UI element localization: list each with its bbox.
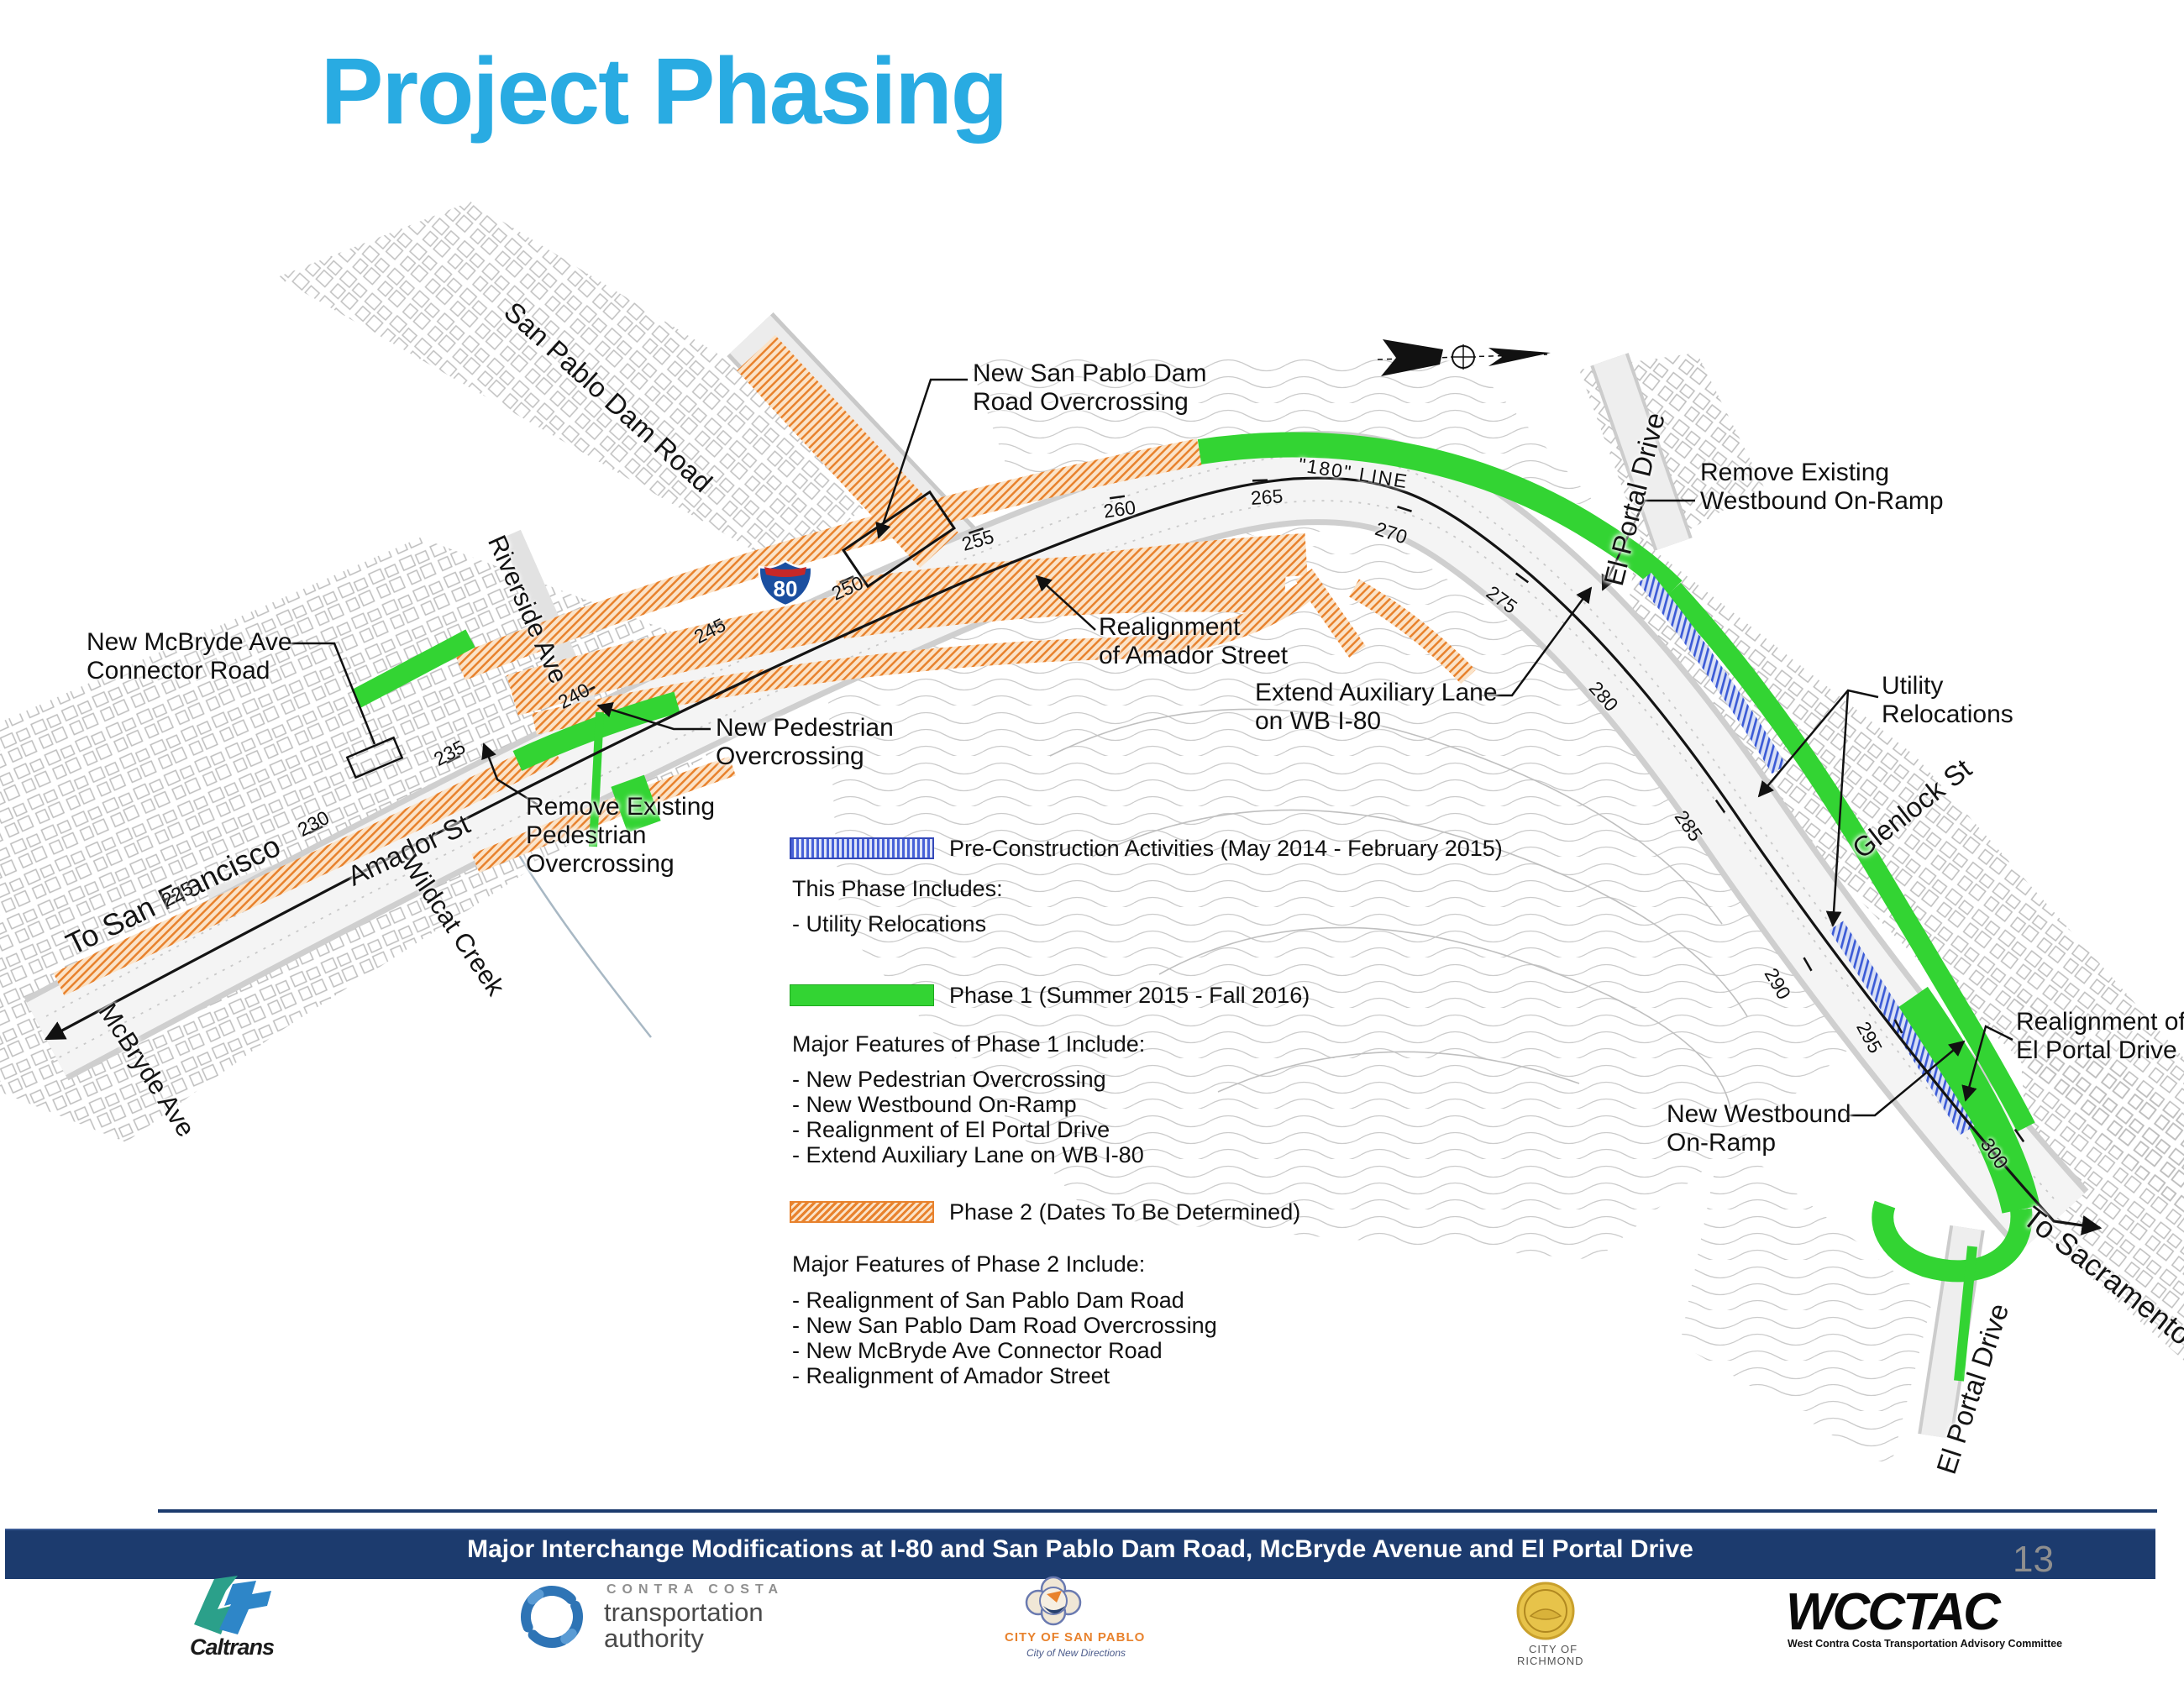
- legend-item: - Realignment of El Portal Drive: [792, 1117, 1110, 1143]
- callout-utility-relocations: Utility Relocations: [1882, 672, 2013, 729]
- callout-remove-existing-westbound-on-ramp: Remove Existing Westbound On-Ramp: [1700, 459, 1944, 516]
- legend-item: - New San Pablo Dam Road Overcrossing: [792, 1313, 1217, 1339]
- richmond-logo-icon: [1515, 1581, 1576, 1641]
- legend-item: - New Westbound On-Ramp: [792, 1092, 1077, 1118]
- legend: Pre-Construction Activities (May 2014 - …: [790, 827, 1562, 1407]
- callout-line: New San Pablo Dam: [973, 359, 1206, 388]
- legend-item: - Utility Relocations: [792, 911, 986, 937]
- legend-item: - Realignment of San Pablo Dam Road: [792, 1288, 1184, 1314]
- callout-line: Westbound On-Ramp: [1700, 487, 1944, 516]
- page-number: 13: [2013, 1539, 2054, 1581]
- legend-subtitle-preconstruction: This Phase Includes:: [792, 876, 1003, 902]
- callout-line: Pedestrian: [526, 821, 715, 850]
- callout-line: El Portal Drive: [2016, 1036, 2184, 1065]
- callout-line: Overcrossing: [716, 742, 894, 771]
- station-260: 260: [1102, 496, 1137, 523]
- caltrans-logo-icon: [179, 1576, 280, 1636]
- san-pablo-logo-caption: CITY OF SAN PABLO: [1005, 1630, 1145, 1645]
- legend-title-phase2: Phase 2 (Dates To Be Determined): [949, 1199, 1300, 1225]
- ccta-logo-icon: [515, 1580, 589, 1654]
- wcctac-logo-caption: West Contra Costa Transportation Advisor…: [1788, 1638, 2062, 1650]
- callout-line: New Westbound: [1667, 1100, 1851, 1129]
- callout-line: Remove Existing: [526, 793, 715, 821]
- callout-line: New McBryde Ave: [87, 628, 292, 657]
- callout-line: Remove Existing: [1700, 459, 1944, 487]
- callout-new-westbound-on-ramp: New Westbound On-Ramp: [1667, 1100, 1851, 1157]
- callout-line: Realignment: [1099, 613, 1288, 642]
- legend-subtitle-phase1: Major Features of Phase 1 Include:: [792, 1031, 1145, 1057]
- callout-line: Extend Auxiliary Lane: [1255, 679, 1498, 707]
- callout-extend-auxiliary-lane: Extend Auxiliary Lane on WB I-80: [1255, 679, 1498, 736]
- legend-title-preconstruction: Pre-Construction Activities (May 2014 - …: [949, 836, 1503, 862]
- page-title: Project Phasing: [0, 37, 1327, 145]
- callout-realignment-of-amador-street: Realignment of Amador Street: [1099, 613, 1288, 670]
- callout-line: Relocations: [1882, 700, 2013, 729]
- callout-remove-existing-pedestrian-overcrossing: Remove Existing Pedestrian Overcrossing: [526, 793, 715, 879]
- ccta-logo-top-text: CONTRA COSTA: [606, 1582, 784, 1597]
- callout-line: on WB I-80: [1255, 707, 1498, 736]
- legend-title-phase1: Phase 1 (Summer 2015 - Fall 2016): [949, 983, 1310, 1009]
- legend-swatch-preconstruction: [790, 837, 934, 859]
- callout-line: On-Ramp: [1667, 1129, 1851, 1157]
- legend-subtitle-phase2: Major Features of Phase 2 Include:: [792, 1251, 1145, 1277]
- callout-new-mcbryde-ave-connector-road: New McBryde Ave Connector Road: [87, 628, 292, 685]
- callout-line: of Amador Street: [1099, 642, 1288, 670]
- callout-new-san-pablo-dam-road-overcrossing: New San Pablo Dam Road Overcrossing: [973, 359, 1206, 417]
- legend-item: - Extend Auxiliary Lane on WB I-80: [792, 1142, 1144, 1168]
- slide: 80 Project Phasing San Pablo Dam Road Ri…: [0, 0, 2184, 1684]
- caltrans-logo-text: Caltrans: [190, 1634, 274, 1660]
- footer-rule: [158, 1509, 2157, 1513]
- callout-line: Realignment of: [2016, 1008, 2184, 1036]
- callout-new-pedestrian-overcrossing: New Pedestrian Overcrossing: [716, 714, 894, 771]
- callout-realignment-of-el-portal-drive: Realignment of El Portal Drive: [2016, 1008, 2184, 1065]
- callout-line: Road Overcrossing: [973, 388, 1206, 417]
- wcctac-logo-text: WCCTAC: [1786, 1582, 1998, 1642]
- richmond-logo-caption-line1: CITY OF: [1529, 1643, 1578, 1655]
- legend-item: - Realignment of Amador Street: [792, 1363, 1110, 1389]
- ccta-logo-line2: authority: [604, 1624, 704, 1654]
- footer-banner-text: Major Interchange Modifications at I-80 …: [0, 1535, 2160, 1564]
- interstate-80-shield-icon: 80: [759, 561, 811, 606]
- callout-line: Utility: [1882, 672, 2013, 700]
- legend-item: - New McBryde Ave Connector Road: [792, 1338, 1163, 1364]
- legend-item: - New Pedestrian Overcrossing: [792, 1067, 1106, 1093]
- legend-swatch-phase2: [790, 1201, 934, 1223]
- callout-line: Overcrossing: [526, 850, 715, 879]
- callout-line: New Pedestrian: [716, 714, 894, 742]
- svg-text:80: 80: [774, 576, 798, 601]
- san-pablo-logo-icon: [1020, 1574, 1087, 1628]
- legend-swatch-phase1: [790, 984, 934, 1006]
- richmond-logo-caption-line2: RICHMOND: [1517, 1655, 1584, 1667]
- san-pablo-logo-tagline: City of New Directions: [1026, 1647, 1126, 1659]
- station-265: 265: [1250, 485, 1284, 510]
- callout-line: Connector Road: [87, 657, 292, 685]
